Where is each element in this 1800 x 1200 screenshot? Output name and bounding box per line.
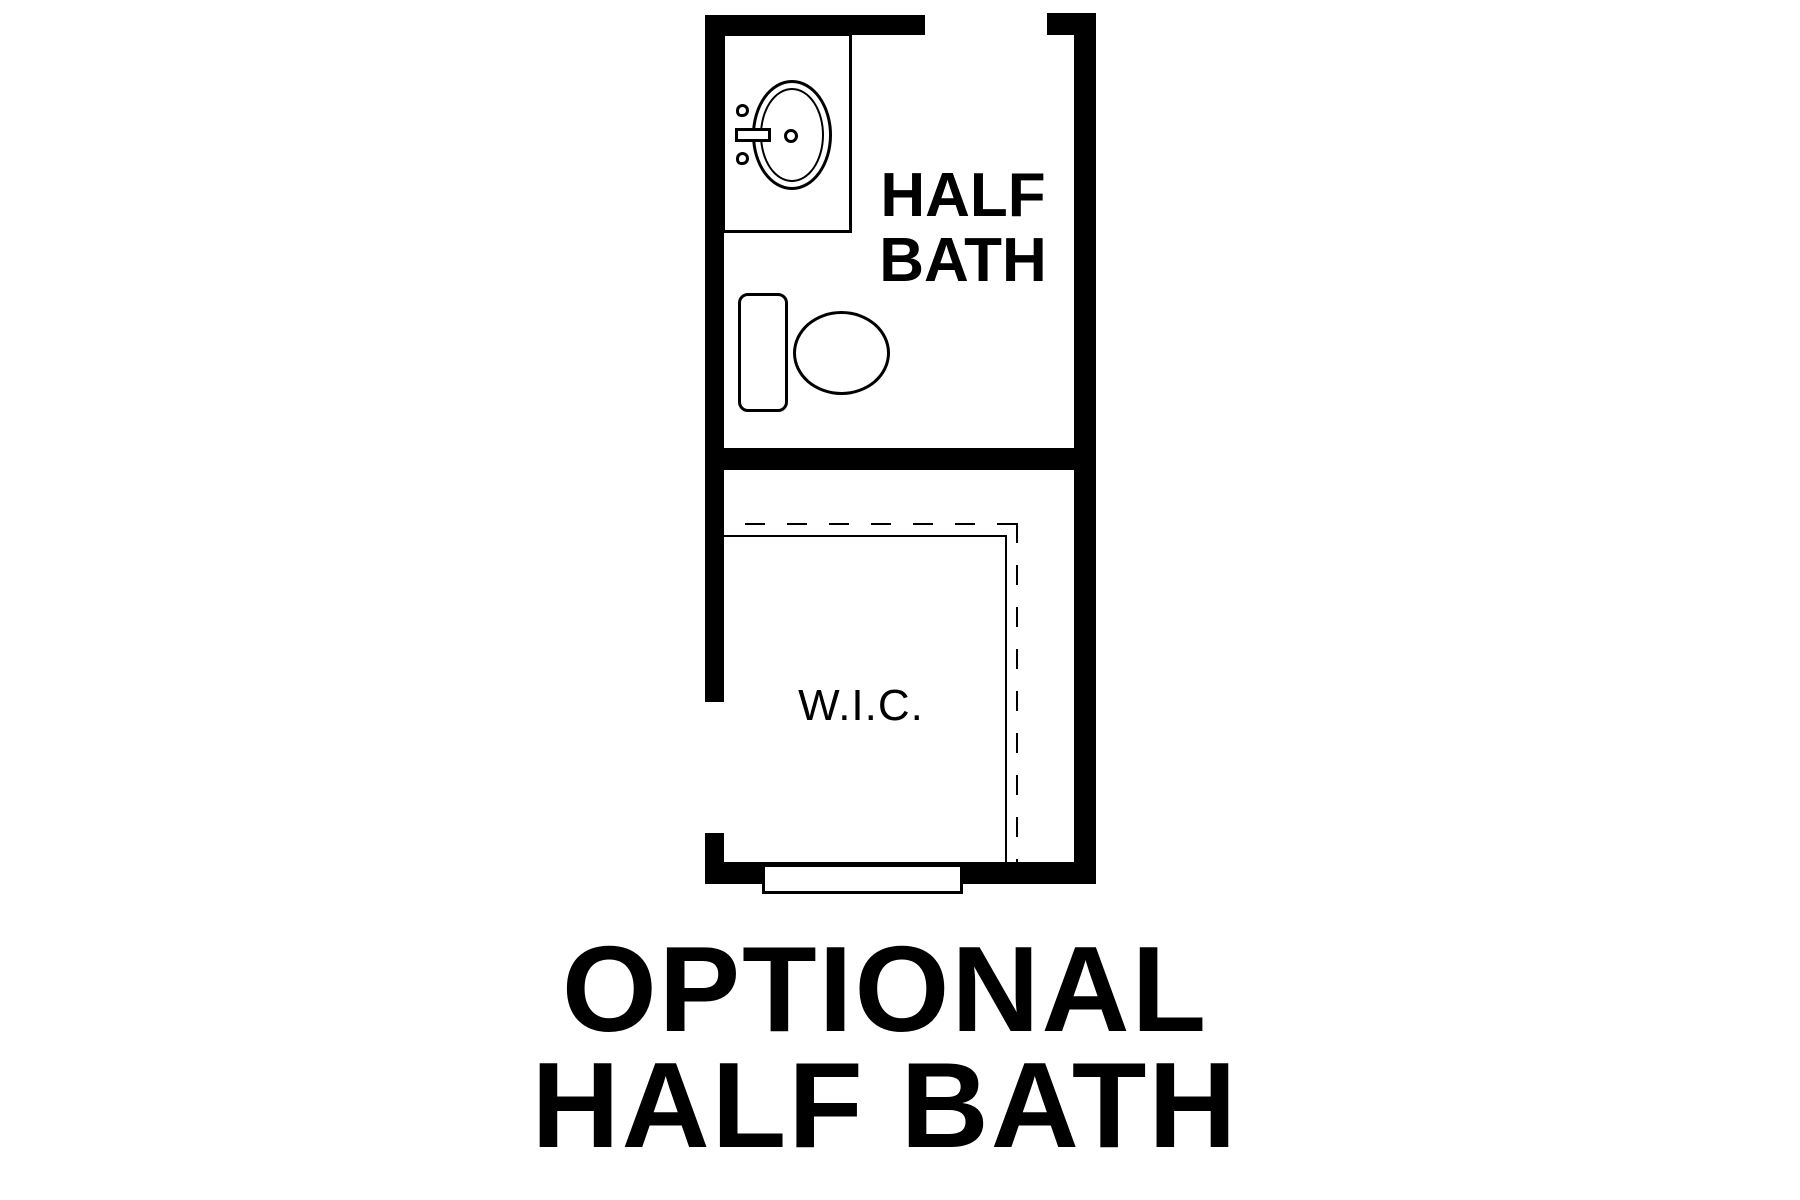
wall-left [705, 15, 724, 702]
half-bath-label: HALF BATH [813, 163, 1113, 293]
toilet-tank-icon [738, 293, 788, 412]
door-opening [762, 864, 963, 894]
closet-shelf-dash-top [745, 523, 1018, 525]
plan-caption: OPTIONAL HALF BATH [285, 931, 1485, 1163]
wic-label: W.I.C. [711, 683, 1011, 729]
closet-wall-line-top [724, 535, 1007, 537]
wall-divider [705, 448, 1096, 470]
faucet-handle-top-icon [736, 104, 749, 117]
caption-line1: OPTIONAL [285, 931, 1485, 1047]
wall-bottom-left-stub [705, 833, 724, 884]
half-bath-label-line2: BATH [813, 228, 1113, 293]
faucet-handle-bottom-icon [736, 152, 749, 165]
wall-top [705, 15, 925, 35]
sink-drain-icon [784, 129, 798, 143]
caption-line2: HALF BATH [285, 1047, 1485, 1163]
half-bath-label-line1: HALF [813, 163, 1113, 228]
faucet-spout-icon [735, 128, 771, 142]
toilet-bowl-icon [793, 311, 890, 395]
closet-shelf-dash-right [1016, 523, 1018, 862]
